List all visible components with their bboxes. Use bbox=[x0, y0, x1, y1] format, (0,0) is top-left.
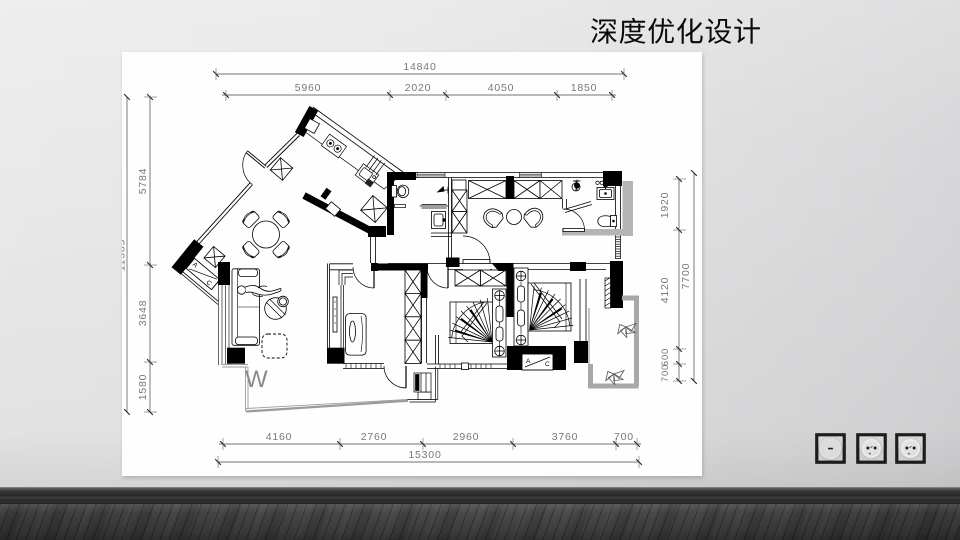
svg-text:5784: 5784 bbox=[137, 168, 149, 195]
svg-text:7700: 7700 bbox=[680, 263, 692, 290]
svg-text:15300: 15300 bbox=[408, 449, 441, 461]
svg-text:2020: 2020 bbox=[405, 82, 432, 94]
svg-text:3760: 3760 bbox=[552, 431, 579, 443]
svg-text:5960: 5960 bbox=[295, 82, 322, 94]
svg-text:700: 700 bbox=[614, 431, 634, 443]
svg-text:1850: 1850 bbox=[571, 82, 598, 94]
svg-text:W: W bbox=[245, 366, 268, 393]
svg-text:2760: 2760 bbox=[361, 431, 388, 443]
svg-text:1580: 1580 bbox=[137, 374, 149, 401]
svg-text:11585: 11585 bbox=[122, 239, 128, 271]
svg-text:14840: 14840 bbox=[403, 61, 436, 73]
svg-text:2960: 2960 bbox=[453, 431, 480, 443]
svg-text:A: A bbox=[526, 358, 531, 365]
svg-text:600: 600 bbox=[660, 348, 671, 366]
svg-text:3648: 3648 bbox=[137, 300, 149, 327]
svg-text:700: 700 bbox=[660, 364, 671, 382]
svg-text:C: C bbox=[545, 361, 550, 368]
svg-text:4120: 4120 bbox=[659, 277, 671, 304]
svg-text:4050: 4050 bbox=[488, 82, 515, 94]
svg-text:1920: 1920 bbox=[659, 192, 671, 219]
svg-text:4160: 4160 bbox=[266, 431, 293, 443]
